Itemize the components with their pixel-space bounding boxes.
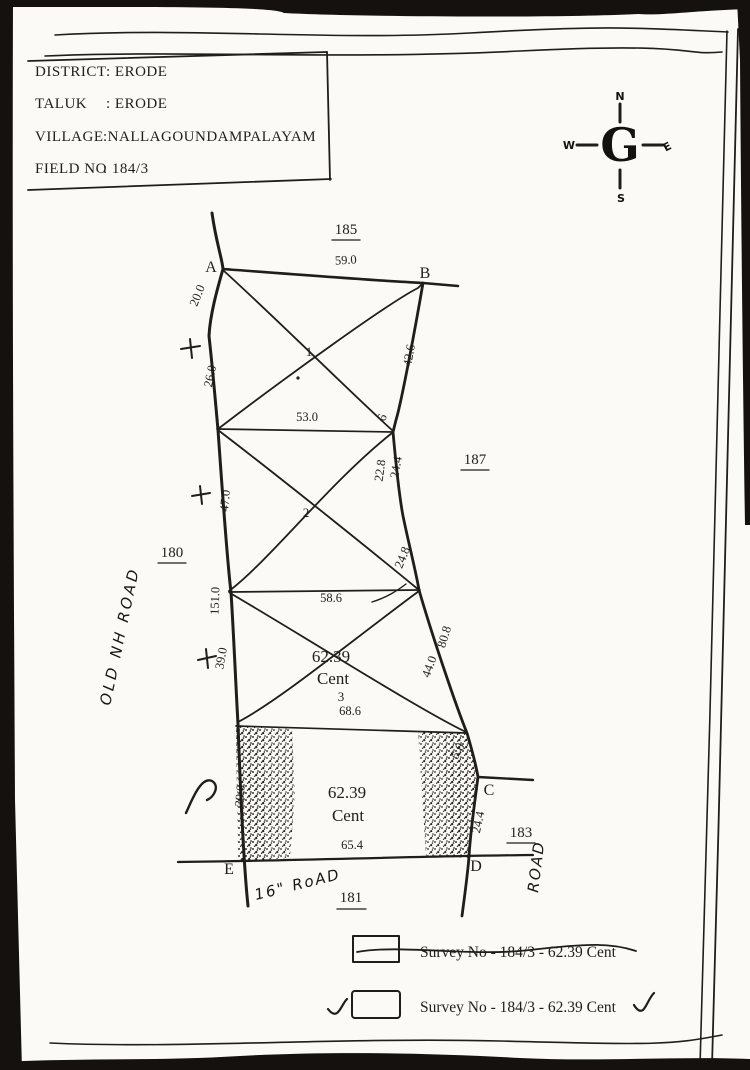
legend: Survey No - 184/3 - 62.39 Cent Survey No… [328, 936, 654, 1018]
left-road-name: OLD NH ROAD [96, 565, 143, 706]
measurement-right-24-4: 24.4 [387, 455, 405, 480]
upper-area-value: 62.39 [312, 647, 350, 666]
measurement-cross-53: 53.0 [296, 410, 318, 424]
station-1: 1 [306, 344, 313, 359]
legend-checkmark-left [328, 999, 347, 1014]
measurement-right-44: 44.0 [419, 654, 440, 679]
lower-area-value: 62.39 [328, 783, 366, 802]
vertex-a: A [205, 259, 217, 276]
compass-north-label: N [615, 90, 624, 103]
survey-no-181: 181 [340, 890, 363, 906]
measurement-bottom-65-4: 65.4 [341, 838, 364, 852]
survey-no-180: 180 [161, 545, 184, 561]
measurement-left-bottom-39: 39.0 [232, 784, 248, 807]
right-road-name: ROAD [524, 840, 548, 894]
handwritten-squiggle [186, 780, 216, 813]
compass-east-label: E [661, 139, 674, 154]
compass-center-glyph: G [600, 118, 639, 172]
compass-west-label: W [563, 139, 575, 152]
survey-no-187: 187 [464, 452, 487, 468]
measurement-left-151: 151.0 [208, 587, 223, 616]
upper-area-unit: Cent [317, 669, 349, 688]
measurement-left-39: 39.0 [212, 646, 230, 670]
road-names: OLD NH ROAD ROAD 16" RoAD [96, 565, 548, 904]
station-2: 2 [303, 505, 310, 520]
measurement-right-42-6: 42.6 [400, 343, 418, 367]
c-road-stub [478, 777, 533, 780]
measurement-top-ab: 59.0 [335, 252, 358, 267]
village-label: VILLAGE [35, 129, 103, 145]
field-no-label: FIELD NO [35, 161, 107, 177]
lower-area-unit: Cent [332, 806, 364, 825]
vertex-c: C [484, 782, 495, 799]
survey-no-183: 183 [510, 825, 533, 841]
compass-south-label: S [617, 192, 625, 205]
legend-checkmark-right [634, 993, 654, 1011]
header-info-box: DISTRICT : ERODE TALUK : ERODE VILLAGE :… [28, 52, 331, 190]
measurement-cross-58-6: 58.6 [320, 591, 342, 605]
district-label: DISTRICT [35, 64, 107, 80]
station-3: 3 [338, 689, 345, 704]
compass-rose: G N S W E [563, 90, 674, 205]
vertex-d: D [470, 858, 482, 875]
measurement-right-80-8: 80.8 [434, 624, 454, 649]
legend-swatch-2 [352, 991, 400, 1018]
vertex-e: E [224, 861, 234, 878]
legend-text-1: Survey No - 184/3 - 62.39 Cent [420, 944, 617, 961]
measurement-right-22-8: 22.8 [372, 459, 389, 483]
village-value: :NALLAGOUNDAMPALAYAM [103, 129, 316, 145]
measurement-left-47: 47.0 [217, 489, 233, 512]
scanned-survey-sketch-page: DISTRICT : ERODE TALUK : ERODE VILLAGE :… [0, 0, 750, 1070]
bottom-road-name: 16" RoAD [253, 865, 343, 904]
taluk-value: : ERODE [106, 96, 167, 112]
survey-dot [296, 376, 299, 379]
measurement-cross-68-6: 68.6 [339, 704, 361, 718]
district-value: : ERODE [106, 64, 167, 80]
vertex-b: B [420, 265, 431, 282]
survey-no-185: 185 [335, 222, 358, 238]
measurement-offset-6: 6 [374, 411, 390, 423]
page-frame [45, 28, 738, 1066]
measurement-left-26: 26.0 [201, 364, 219, 388]
field-no-value: : 184/3 [103, 161, 149, 177]
legend-text-2: Survey No - 184/3 - 62.39 Cent [420, 999, 617, 1016]
taluk-label: TALUK [35, 96, 87, 112]
measurement-left-20: 20.0 [187, 283, 208, 309]
survey-sketch-canvas: DISTRICT : ERODE TALUK : ERODE VILLAGE :… [0, 0, 750, 1070]
